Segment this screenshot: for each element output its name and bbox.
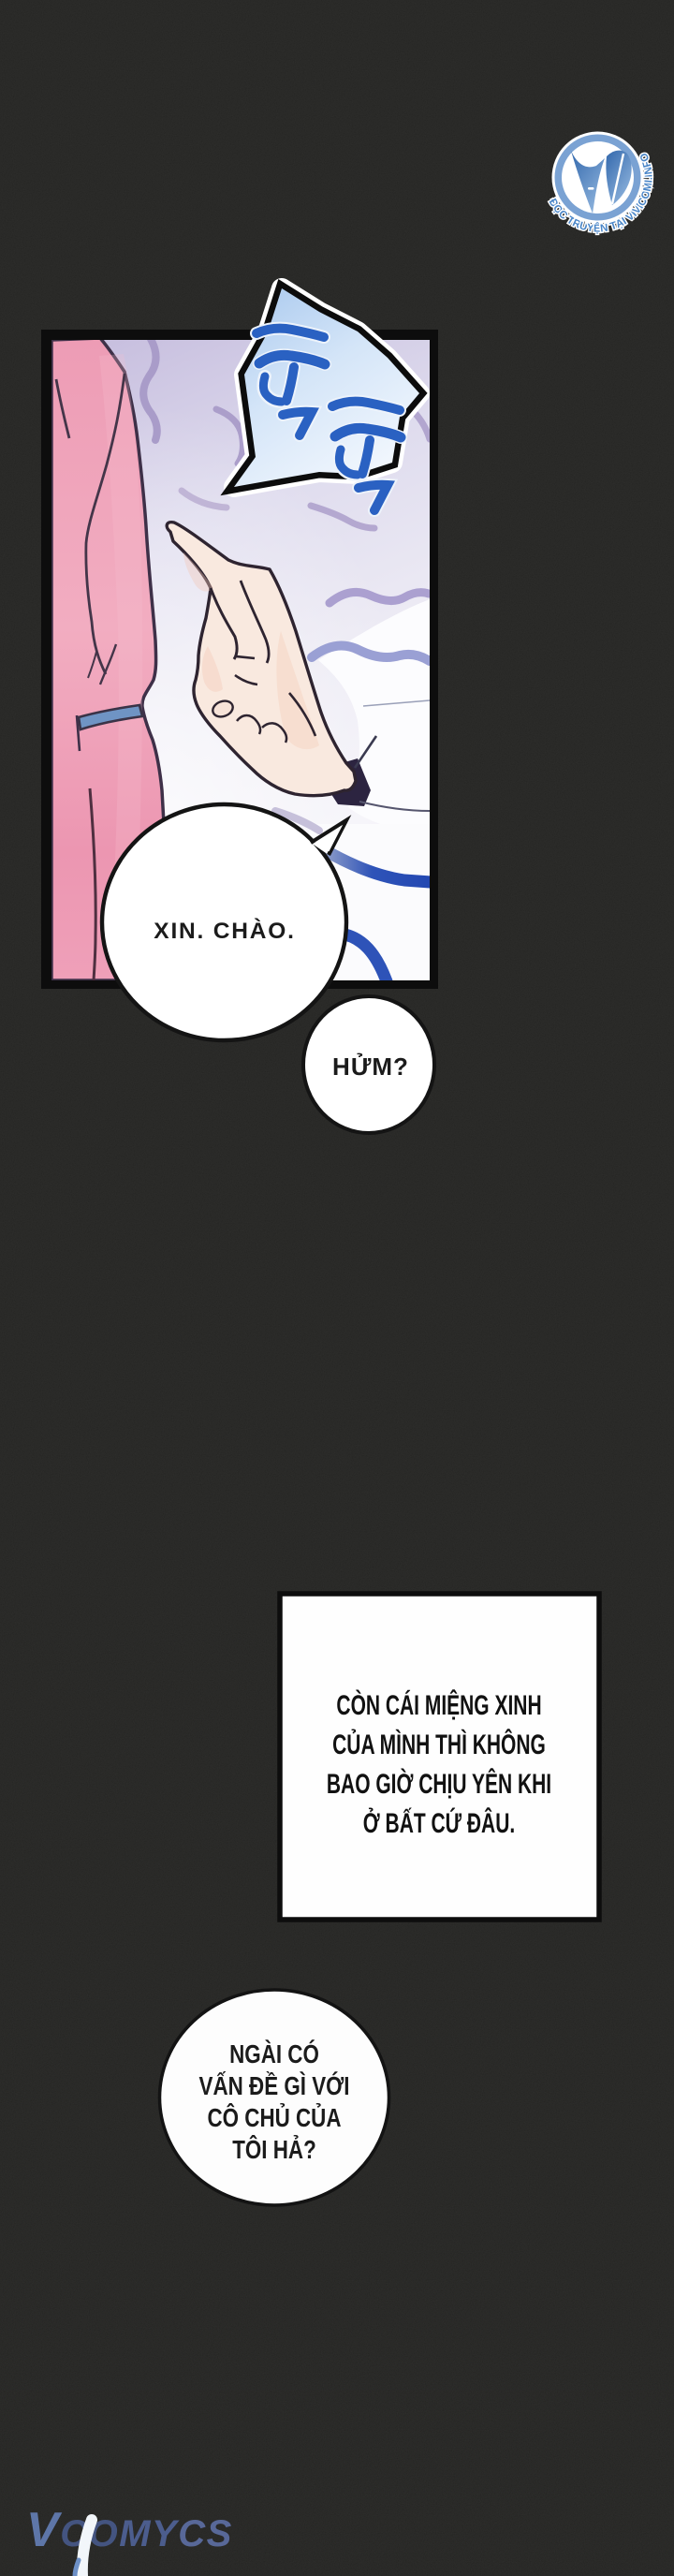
svg-text:XIN. CHÀO.: XIN. CHÀO. — [154, 918, 295, 944]
svg-text:VẤN ĐỀ GÌ VỚI: VẤN ĐỀ GÌ VỚI — [199, 2069, 350, 2100]
svg-text:HỬM?: HỬM? — [332, 1052, 409, 1081]
svg-text:Ở BẤT CỨ ĐÂU.: Ở BẤT CỨ ĐÂU. — [363, 1806, 515, 1839]
svg-text:CỦA MÌNH THÌ KHÔNG: CỦA MÌNH THÌ KHÔNG — [332, 1728, 546, 1760]
svg-text:BAO GIỜ CHỊU YÊN KHI: BAO GIỜ CHỊU YÊN KHI — [327, 1767, 551, 1800]
svg-text:NGÀI CÓ: NGÀI CÓ — [229, 2038, 319, 2068]
svg-text:CÒN CÁI MIỆNG XINH: CÒN CÁI MIỆNG XINH — [336, 1688, 541, 1721]
svg-text:CÔ CHỦ CỦA: CÔ CHỦ CỦA — [207, 2101, 341, 2132]
svg-text:TÔI HẢ?: TÔI HẢ? — [232, 2133, 316, 2164]
